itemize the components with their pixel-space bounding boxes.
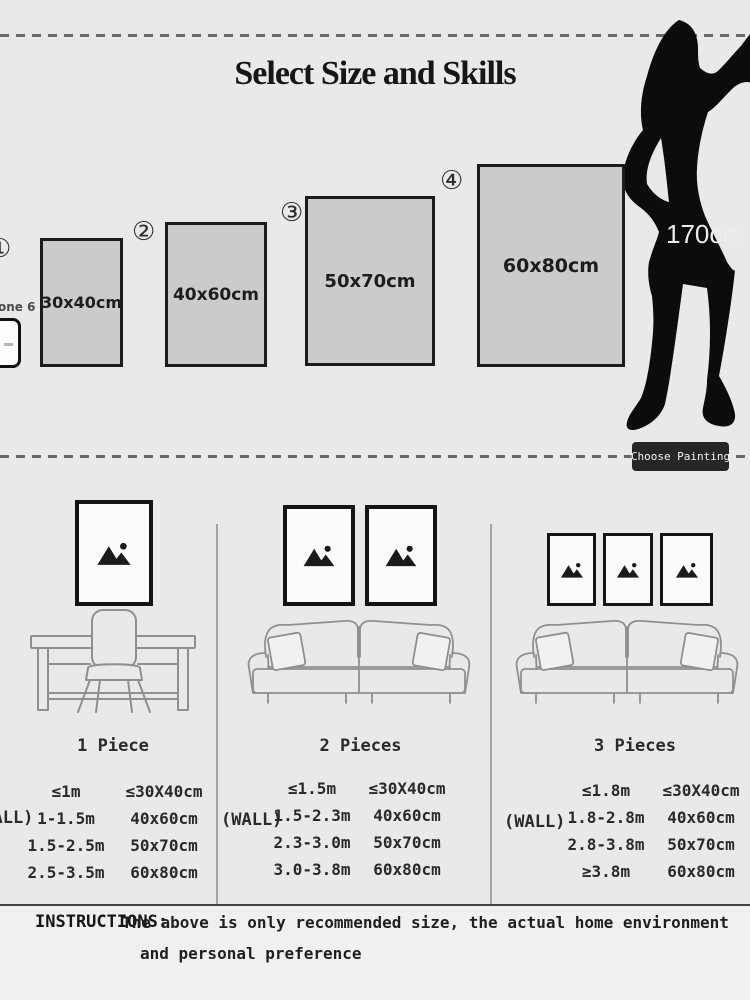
cell: 40x60cm bbox=[351, 802, 463, 829]
label-3-pieces: 3 Pieces bbox=[562, 736, 708, 756]
cell: 2.5-3.5m bbox=[10, 859, 122, 886]
cell: 40x60cm bbox=[108, 805, 220, 832]
table-2pieces-sizes: ≤30X40cm 40x60cm 50x70cm 60x80cm bbox=[351, 775, 463, 883]
phone-caption: one 6 bbox=[0, 300, 35, 314]
cell: 1.5-2.5m bbox=[10, 832, 122, 859]
sofa-illustration-2 bbox=[242, 607, 476, 707]
size-guide-infographic: Select Size and Skills ① one 6 30x40cm ②… bbox=[0, 0, 750, 1000]
cell: 60x80cm bbox=[645, 858, 750, 885]
reference-height-label: 170cm bbox=[666, 219, 744, 250]
frame-3piece-b bbox=[603, 533, 653, 606]
sofa-illustration-3 bbox=[508, 607, 746, 707]
image-placeholder-icon bbox=[94, 540, 134, 567]
instructions-line-1: The above is only recommended size, the … bbox=[122, 913, 729, 932]
instructions-divider-line bbox=[0, 904, 750, 906]
frame-3piece-a bbox=[547, 533, 596, 606]
size-option-50x70[interactable]: 50x70cm bbox=[305, 196, 435, 366]
label-2-pieces: 2 Pieces bbox=[288, 736, 433, 756]
cell: 1-1.5m bbox=[10, 805, 122, 832]
image-placeholder-icon bbox=[674, 561, 700, 579]
option-4-number-badge: ④ bbox=[440, 168, 463, 194]
size-option-30x40[interactable]: 30x40cm bbox=[40, 238, 123, 367]
image-placeholder-icon bbox=[301, 543, 337, 568]
table-3pieces-sizes: ≤30X40cm 40x60cm 50x70cm 60x80cm bbox=[645, 777, 750, 885]
phone-icon bbox=[0, 318, 21, 368]
cell: 50x70cm bbox=[108, 832, 220, 859]
cell: 50x70cm bbox=[351, 829, 463, 856]
frame-2piece-b bbox=[365, 505, 437, 606]
label-1-piece: 1 Piece bbox=[40, 736, 186, 756]
desk-chair-illustration bbox=[28, 606, 198, 714]
size-option-40x60-label: 40x60cm bbox=[173, 285, 259, 305]
size-option-50x70-label: 50x70cm bbox=[324, 271, 415, 292]
cell: 60x80cm bbox=[351, 856, 463, 883]
choose-painting-button[interactable]: Choose Painting bbox=[632, 442, 729, 471]
image-placeholder-icon bbox=[383, 543, 419, 568]
size-option-60x80[interactable]: 60x80cm bbox=[477, 164, 625, 367]
cell: 60x80cm bbox=[108, 859, 220, 886]
table-1piece-sizes: ≤30X40cm 40x60cm 50x70cm 60x80cm bbox=[108, 778, 220, 886]
frame-1piece bbox=[75, 500, 153, 606]
size-option-60x80-label: 60x80cm bbox=[503, 255, 599, 277]
cell: 40x60cm bbox=[645, 804, 750, 831]
image-placeholder-icon bbox=[615, 561, 641, 579]
cell: ≤30X40cm bbox=[645, 777, 750, 804]
option-3-number-badge: ③ bbox=[280, 200, 303, 226]
divider-right bbox=[490, 524, 492, 906]
option-2-number-badge: ② bbox=[132, 219, 155, 245]
frame-2piece-a bbox=[283, 505, 355, 606]
cell: ≤30X40cm bbox=[351, 775, 463, 802]
size-option-30x40-label: 30x40cm bbox=[41, 293, 122, 312]
table-1piece-wall-widths: ≤1m 1-1.5m 1.5-2.5m 2.5-3.5m bbox=[10, 778, 122, 886]
cell: ≤30X40cm bbox=[108, 778, 220, 805]
cell: 50x70cm bbox=[645, 831, 750, 858]
size-option-40x60[interactable]: 40x60cm bbox=[165, 222, 267, 367]
instructions-line-2: and personal preference bbox=[140, 944, 362, 963]
cell: ≤1m bbox=[10, 778, 122, 805]
image-placeholder-icon bbox=[559, 561, 585, 579]
frame-3piece-c bbox=[660, 533, 713, 606]
option-1-number-badge: ① bbox=[0, 236, 11, 262]
